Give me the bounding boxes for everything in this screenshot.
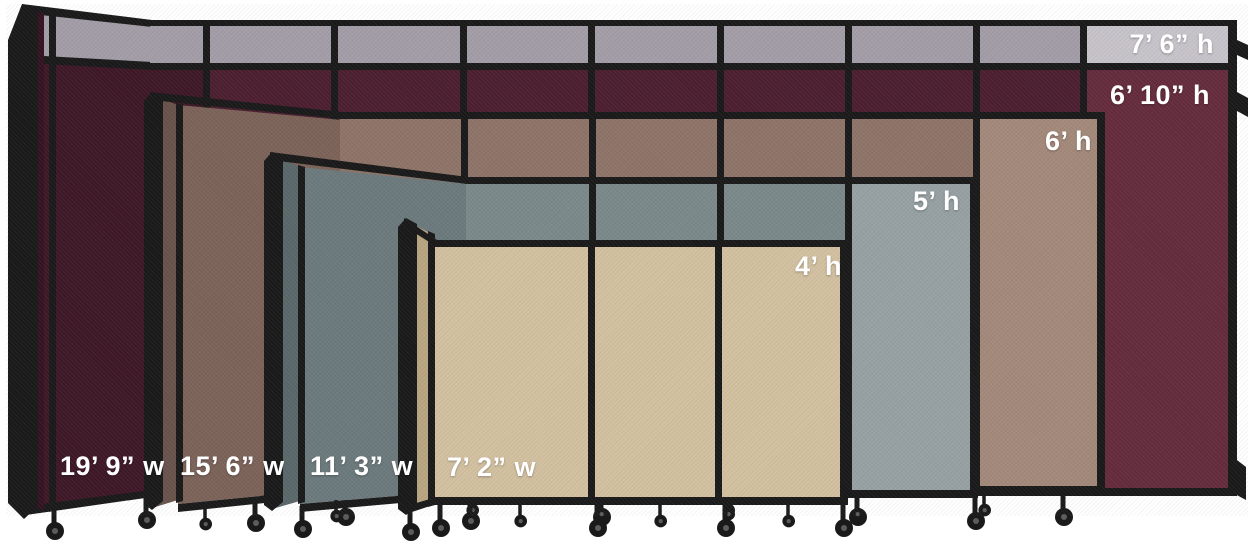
product-size-comparison-image: 7’ 6” h 6’ 10” h 6’ h 5’ h 4’ h 19’ 9” w… xyxy=(0,0,1248,542)
corner-post xyxy=(398,218,417,515)
fabric-panel xyxy=(722,247,840,497)
caster-wheel xyxy=(835,505,853,537)
caster-wheel xyxy=(654,505,667,527)
caster-wheel xyxy=(717,505,735,537)
fabric-panel xyxy=(435,247,588,497)
caster-wheel xyxy=(782,505,795,527)
fabric-panel xyxy=(595,247,715,497)
room-divider-7ft2 xyxy=(0,0,1248,542)
panel-seam xyxy=(428,231,435,507)
caster-wheel xyxy=(432,505,450,537)
caster-wheel xyxy=(514,505,527,527)
divider-7ft2-panel-run xyxy=(435,240,848,505)
caster-wheel xyxy=(589,505,607,537)
